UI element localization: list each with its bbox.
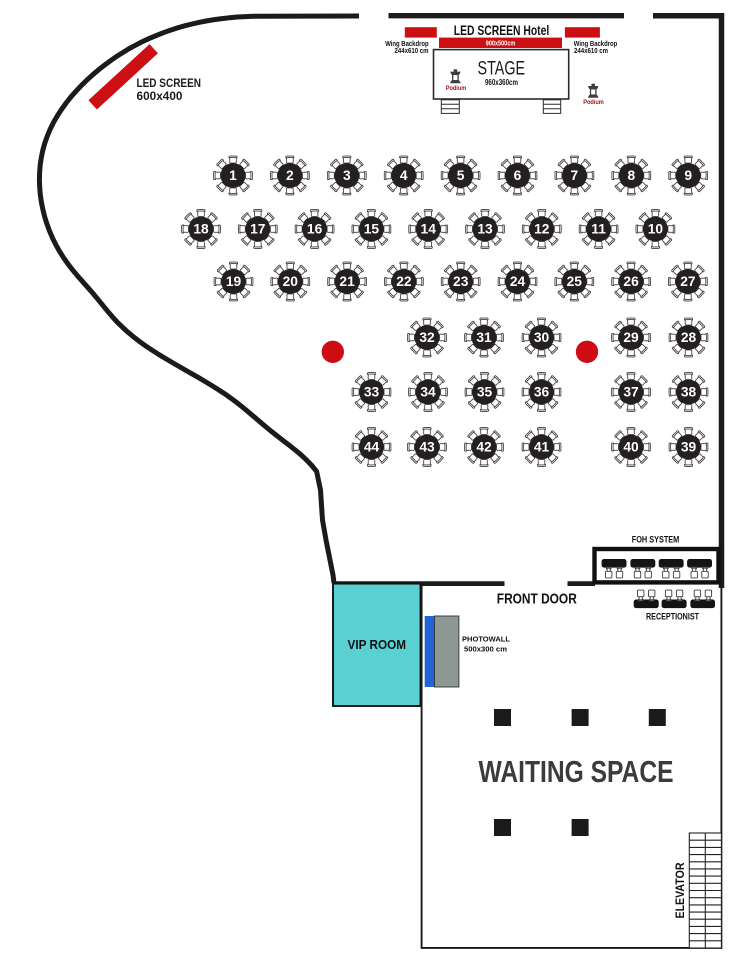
svg-text:2: 2 (286, 168, 294, 183)
svg-text:244x610 cm: 244x610 cm (574, 48, 608, 55)
svg-text:VIP ROOM: VIP ROOM (348, 637, 407, 652)
svg-text:36: 36 (534, 385, 550, 400)
svg-text:41: 41 (534, 440, 550, 455)
svg-text:FOH SYSTEM: FOH SYSTEM (632, 535, 680, 545)
svg-text:24: 24 (510, 274, 526, 289)
svg-text:15: 15 (364, 222, 380, 237)
svg-text:LED SCREEN Hotel: LED SCREEN Hotel (454, 23, 550, 38)
svg-text:31: 31 (476, 330, 492, 345)
svg-text:13: 13 (477, 222, 493, 237)
svg-text:3: 3 (343, 168, 351, 183)
svg-text:35: 35 (477, 385, 493, 400)
svg-text:5: 5 (457, 168, 465, 183)
svg-text:FRONT DOOR: FRONT DOOR (497, 592, 577, 608)
svg-text:PHOTOWALL: PHOTOWALL (462, 635, 510, 644)
svg-text:42: 42 (476, 440, 492, 455)
svg-text:43: 43 (419, 440, 435, 455)
svg-text:7: 7 (571, 168, 579, 183)
svg-text:960x360cm: 960x360cm (485, 77, 518, 87)
svg-text:25: 25 (567, 274, 583, 289)
svg-text:29: 29 (623, 330, 639, 345)
svg-text:44: 44 (364, 440, 380, 455)
svg-text:18: 18 (193, 222, 209, 237)
svg-text:244x610 cm: 244x610 cm (395, 48, 429, 55)
svg-text:38: 38 (681, 385, 697, 400)
svg-text:19: 19 (226, 274, 242, 289)
svg-text:ELEVATOR: ELEVATOR (675, 862, 687, 919)
svg-text:RECEPTIONIST: RECEPTIONIST (646, 612, 699, 622)
svg-text:WAITING SPACE: WAITING SPACE (479, 754, 674, 789)
svg-text:40: 40 (623, 440, 639, 455)
svg-text:Podium: Podium (583, 99, 604, 106)
svg-text:14: 14 (421, 222, 437, 237)
svg-text:6: 6 (514, 168, 522, 183)
svg-text:20: 20 (283, 274, 299, 289)
svg-text:21: 21 (339, 274, 355, 289)
svg-text:30: 30 (534, 330, 550, 345)
svg-text:23: 23 (453, 274, 469, 289)
svg-text:900x500cm: 900x500cm (486, 38, 516, 47)
svg-text:Podium: Podium (446, 85, 467, 92)
svg-text:Wing Backdrop: Wing Backdrop (574, 41, 618, 48)
svg-text:9: 9 (684, 168, 692, 183)
svg-text:22: 22 (396, 274, 412, 289)
svg-text:33: 33 (364, 385, 380, 400)
svg-text:32: 32 (419, 330, 435, 345)
svg-text:26: 26 (623, 274, 639, 289)
svg-text:600x400: 600x400 (137, 89, 183, 103)
svg-text:34: 34 (420, 385, 436, 400)
svg-text:4: 4 (400, 168, 408, 183)
svg-text:39: 39 (681, 440, 697, 455)
svg-text:12: 12 (534, 222, 550, 237)
svg-text:500x300 cm: 500x300 cm (464, 645, 508, 654)
svg-text:LED SCREEN: LED SCREEN (137, 76, 202, 90)
svg-text:8: 8 (627, 168, 635, 183)
svg-text:37: 37 (623, 385, 639, 400)
svg-text:16: 16 (307, 222, 323, 237)
svg-text:1: 1 (229, 168, 237, 183)
svg-text:10: 10 (648, 222, 664, 237)
svg-text:28: 28 (681, 330, 697, 345)
svg-text:27: 27 (680, 274, 696, 289)
svg-text:17: 17 (250, 222, 266, 237)
svg-text:Wing Backdrop: Wing Backdrop (385, 41, 429, 48)
svg-text:11: 11 (591, 222, 606, 237)
